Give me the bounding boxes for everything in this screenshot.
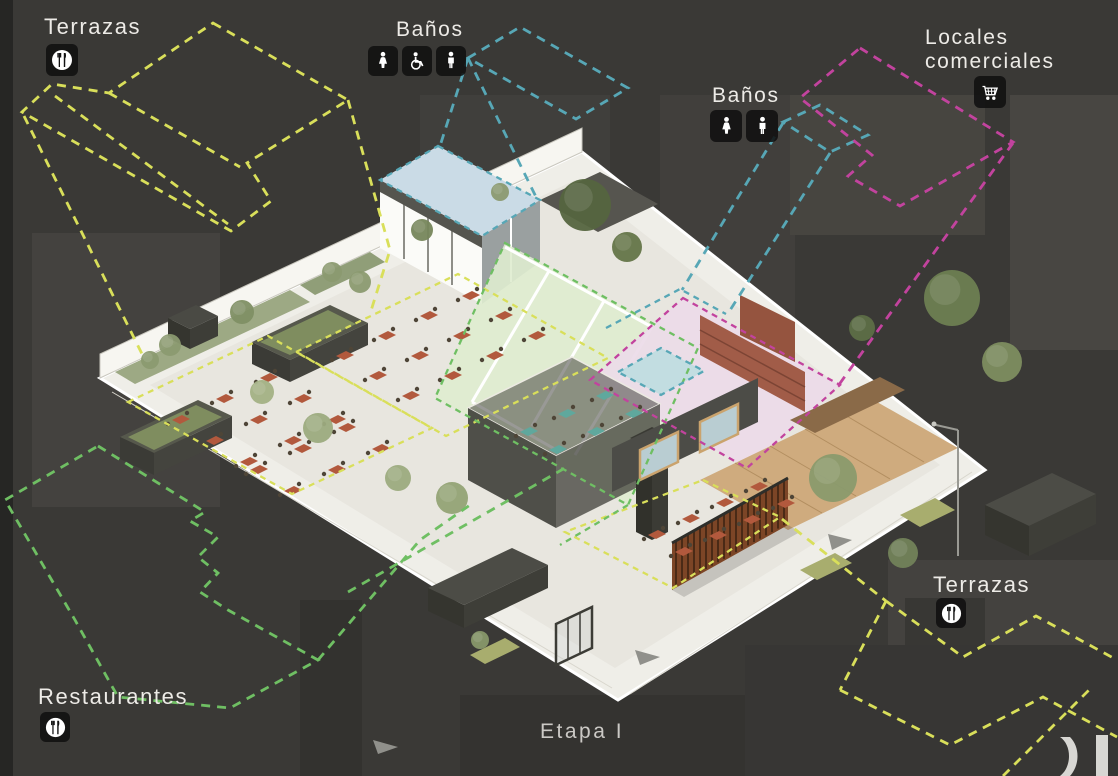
restaurant-utensils-icon: [936, 598, 966, 628]
isometric-site-illustration: [0, 0, 1118, 776]
label-banos-right: Baños: [712, 84, 780, 108]
label-locales-line1: Locales: [925, 26, 1009, 50]
woman-icon: [368, 46, 398, 76]
wheelchair-accessible-icon: [402, 46, 432, 76]
label-locales-line2: comerciales: [925, 50, 1055, 74]
stage-label: Etapa I: [540, 720, 624, 744]
restaurant-utensils-icon: [46, 44, 78, 76]
shopping-cart-icon: [974, 76, 1006, 108]
label-terrazas-top-left: Terrazas: [44, 14, 141, 40]
man-icon: [436, 46, 466, 76]
woman-icon: [710, 110, 742, 142]
label-banos-top: Baños: [396, 18, 464, 42]
restaurant-utensils-icon: [40, 712, 70, 742]
label-restaurantes: Restaurantes: [38, 684, 188, 710]
man-icon: [746, 110, 778, 142]
site-plan-diagram: Terrazas Baños Locales comerciales: [0, 0, 1118, 776]
label-terrazas-bottom-right: Terrazas: [933, 572, 1030, 598]
